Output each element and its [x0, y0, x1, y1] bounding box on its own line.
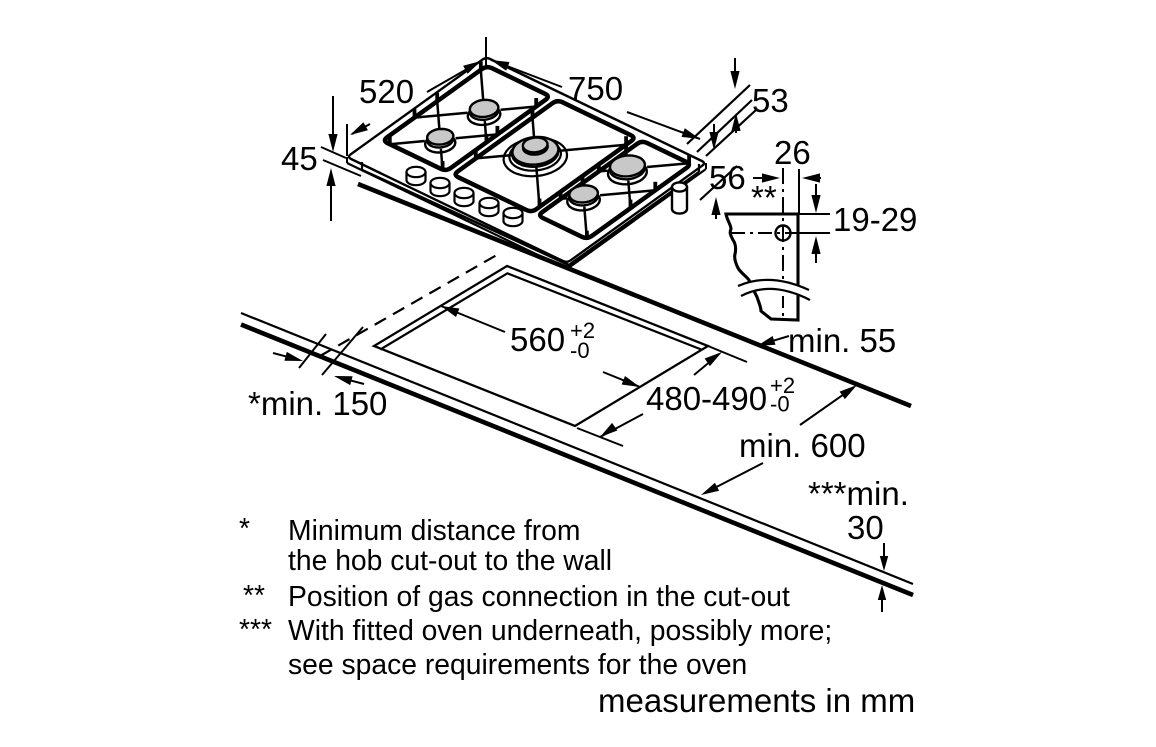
svg-text:-0: -0 — [770, 392, 790, 417]
svg-text:45: 45 — [281, 140, 318, 177]
svg-text:With fitted oven underneath, p: With fitted oven underneath, possibly mo… — [288, 614, 832, 646]
svg-text:56: 56 — [709, 159, 746, 196]
svg-text:53: 53 — [752, 82, 789, 119]
svg-text:measurements in mm: measurements in mm — [598, 682, 915, 719]
svg-text:min. 600: min. 600 — [739, 427, 866, 464]
svg-text:19-29: 19-29 — [833, 201, 917, 238]
svg-text:see space requirements for the: see space requirements for the oven — [288, 648, 747, 680]
svg-text:the hob cut-out to the wall: the hob cut-out to the wall — [288, 544, 612, 576]
svg-text:***: *** — [239, 613, 272, 645]
svg-text:30: 30 — [847, 509, 884, 546]
svg-text:560: 560 — [510, 321, 565, 358]
svg-text:**: ** — [243, 579, 265, 611]
svg-text:min. 55: min. 55 — [788, 322, 896, 359]
svg-text:**: ** — [751, 179, 777, 216]
svg-text:***min.: ***min. — [808, 475, 909, 512]
svg-text:Minimum distance from: Minimum distance from — [288, 514, 580, 546]
svg-text:480-490: 480-490 — [646, 380, 767, 417]
svg-text:*: * — [239, 512, 250, 544]
svg-text:750: 750 — [568, 70, 623, 107]
svg-text:26: 26 — [774, 134, 811, 171]
svg-text:-0: -0 — [570, 338, 590, 363]
svg-text:*min. 150: *min. 150 — [248, 385, 387, 422]
svg-text:Position of gas connection in: Position of gas connection in the cut-ou… — [288, 580, 790, 612]
svg-text:520: 520 — [359, 73, 414, 110]
